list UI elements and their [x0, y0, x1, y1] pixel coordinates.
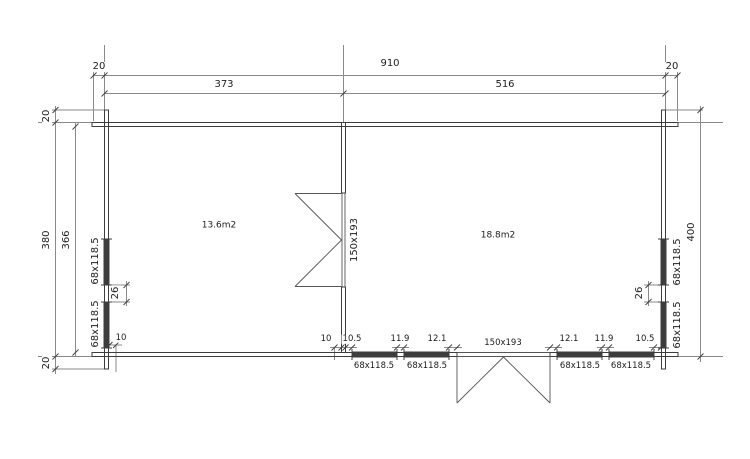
- window-size-label-bottom-1: 68x118.5: [353, 362, 395, 371]
- floor-plan-drawing: [0, 0, 750, 459]
- dim-left-overall-depth-label: 380: [42, 229, 52, 250]
- window-size-label-bottom-3: 68x118.5: [559, 362, 601, 371]
- floor-plan-canvas: 20 910 20 373 516 20 380 366 20 68x118.5…: [0, 0, 750, 459]
- room1-area-label: 13.6m2: [201, 222, 238, 231]
- windows: [104, 239, 667, 358]
- dim-room2-width-label: 516: [494, 80, 515, 90]
- dim-room1-width-label: 373: [213, 80, 234, 90]
- dim-left-window-gap-label: 26: [111, 286, 121, 301]
- bottom-wall-window-1: [352, 352, 397, 358]
- dim-bottom-left-corner-offset-label: 10: [115, 334, 128, 343]
- interior-door-size-label: 150x193: [350, 217, 360, 263]
- window-size-label-bottom-2: 68x118.5: [406, 362, 448, 371]
- dim-right-overall-depth-label: 400: [687, 221, 697, 242]
- dimension-ticks: [53, 73, 704, 373]
- bottom-wall-left: [92, 353, 457, 357]
- interior-wall-upper: [342, 123, 346, 194]
- dim-bottom-gap5-label: 11.9: [594, 335, 615, 344]
- dim-left-bottom-overhang-label: 20: [42, 356, 52, 371]
- room2-area-label: 18.8m2: [480, 232, 517, 241]
- right-wall-window-upper: [661, 239, 667, 285]
- extension-lines: [38, 45, 723, 374]
- left-wall-window-lower: [104, 302, 110, 348]
- window-size-label-right-lower: 68x118.5: [673, 300, 683, 349]
- window-size-label-bottom-4: 68x118.5: [610, 362, 652, 371]
- bottom-wall-window-4: [609, 352, 654, 358]
- dim-top-right-overhang-label: 20: [665, 62, 680, 72]
- bottom-wall-window-2: [404, 352, 449, 358]
- right-wall-window-lower: [661, 302, 667, 348]
- dim-left-inner-depth-label: 366: [62, 229, 72, 250]
- window-size-label-right-upper: 68x118.5: [673, 237, 683, 286]
- dim-bottom-gap6-label: 10.5: [635, 335, 656, 344]
- dim-bottom-gap4-label: 12.1: [559, 335, 580, 344]
- dim-bottom-divider-right-label: 10.5: [342, 335, 363, 344]
- left-wall-window-upper: [104, 239, 110, 285]
- interior-door-swing: [295, 193, 345, 287]
- top-wall: [92, 123, 678, 127]
- window-end-ticks: [101, 239, 669, 360]
- window-size-label-left-upper: 68x118.5: [91, 236, 101, 285]
- dim-right-window-gap-label: 26: [635, 286, 645, 301]
- window-size-label-left-lower: 68x118.5: [91, 299, 101, 348]
- dim-bottom-gap3-label: 12.1: [427, 335, 448, 344]
- dim-overall-width-label: 910: [379, 59, 400, 69]
- bottom-wall-window-3: [557, 352, 602, 358]
- entrance-door-size-label: 150x193: [483, 339, 522, 348]
- entrance-door-swing: [457, 353, 550, 404]
- dim-bottom-divider-left-label: 10: [320, 335, 333, 344]
- walls: [92, 110, 678, 369]
- dim-bottom-gap2-label: 11.9: [390, 335, 411, 344]
- dim-left-top-overhang-label: 20: [42, 109, 52, 124]
- dim-top-left-overhang-label: 20: [92, 62, 107, 72]
